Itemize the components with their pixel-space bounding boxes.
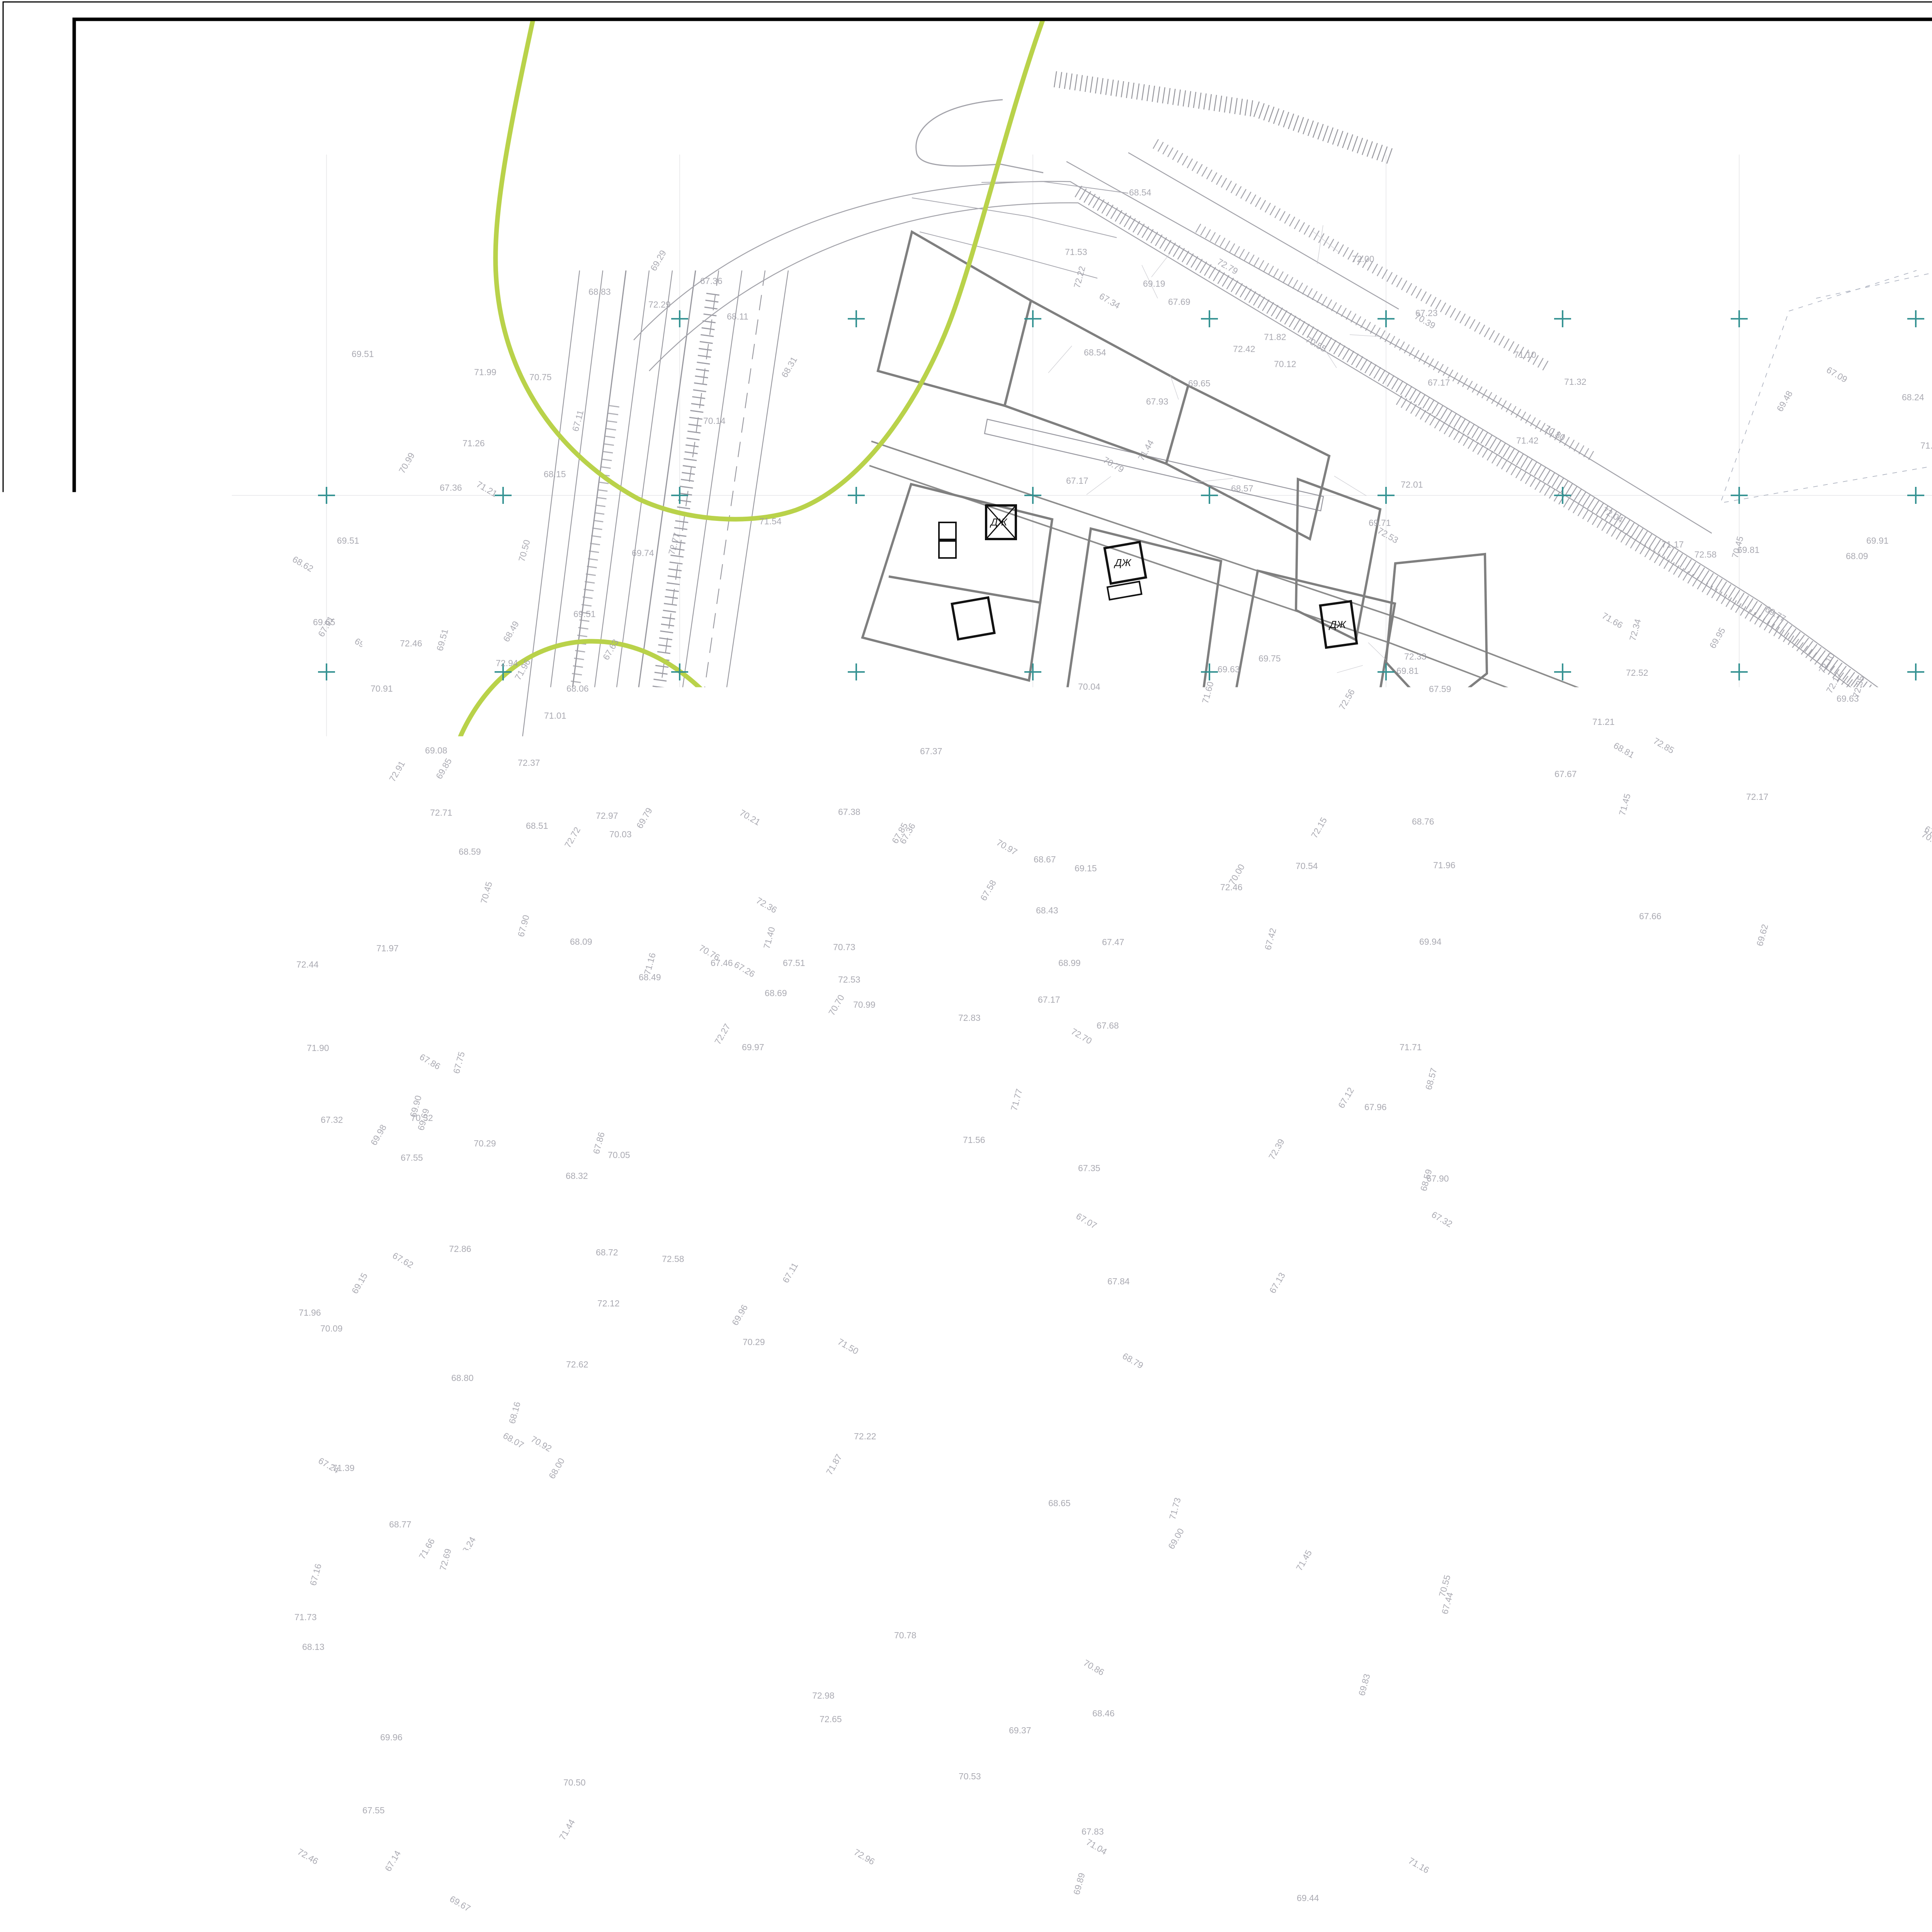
svg-text:72.00: 72.00	[1352, 254, 1374, 264]
svg-text:72.46: 72.46	[1220, 882, 1243, 892]
svg-text:71.99: 71.99	[474, 367, 497, 377]
svg-text:67.13: 67.13	[1649, 1224, 1671, 1234]
svg-text:71.32: 71.32	[1593, 1680, 1615, 1690]
svg-text:68.46: 68.46	[1092, 1708, 1115, 1718]
svg-text:71.73: 71.73	[294, 1612, 317, 1622]
svg-text:71.95: 71.95	[1405, 1836, 1428, 1846]
svg-text:72.97: 72.97	[596, 811, 618, 821]
svg-text:71.97: 71.97	[376, 943, 399, 953]
svg-text:70.14: 70.14	[703, 416, 726, 426]
svg-text:68.99: 68.99	[1058, 958, 1081, 968]
svg-text:68.54: 68.54	[1084, 347, 1106, 357]
svg-text:67.55: 67.55	[401, 1153, 423, 1163]
svg-text:70.85: 70.85	[1648, 1238, 1671, 1248]
svg-text:71.42: 71.42	[1516, 435, 1539, 446]
svg-text:69.57: 69.57	[1774, 983, 1796, 993]
svg-text:67.17: 67.17	[1428, 378, 1450, 388]
svg-text:68.32: 68.32	[566, 1171, 588, 1181]
svg-text:69.94: 69.94	[1419, 937, 1442, 947]
svg-text:71.34: 71.34	[1874, 1628, 1897, 1638]
svg-text:68.59: 68.59	[1899, 1498, 1922, 1508]
svg-text:71.54: 71.54	[838, 1734, 861, 1744]
svg-text:КН: КН	[1225, 1706, 1238, 1718]
svg-text:68.24: 68.24	[1902, 392, 1924, 402]
svg-text:70.06: 70.06	[872, 1522, 894, 1532]
svg-text:68.57: 68.57	[1231, 483, 1253, 493]
svg-text:69.84: 69.84	[691, 1069, 714, 1079]
svg-text:68.02: 68.02	[867, 1638, 890, 1648]
svg-text:69.65: 69.65	[1188, 378, 1211, 388]
svg-text:71.32: 71.32	[1564, 377, 1587, 387]
svg-text:71.96: 71.96	[1695, 1496, 1717, 1506]
svg-text:69.64: 69.64	[277, 1603, 299, 1613]
svg-text:69.51: 69.51	[352, 349, 374, 359]
svg-text:70.32: 70.32	[411, 1113, 433, 1123]
svg-text:72.17: 72.17	[1746, 792, 1769, 802]
svg-text:68.20: 68.20	[856, 1617, 878, 1627]
svg-text:71.81: 71.81	[561, 1786, 583, 1796]
svg-text:67.13: 67.13	[961, 1894, 983, 1904]
svg-text:69.74: 69.74	[632, 548, 654, 558]
svg-text:70.54: 70.54	[1296, 861, 1318, 871]
svg-text:71.35: 71.35	[892, 1180, 915, 1190]
svg-text:72.12: 72.12	[597, 1298, 620, 1308]
svg-text:71.82: 71.82	[1264, 332, 1286, 342]
svg-text:71.54: 71.54	[759, 516, 782, 526]
svg-text:70.78: 70.78	[894, 1630, 917, 1640]
svg-text:67.59: 67.59	[1429, 684, 1451, 694]
svg-text:67.35: 67.35	[1078, 1163, 1100, 1173]
svg-text:69.97: 69.97	[742, 1042, 764, 1052]
svg-text:70.04: 70.04	[1078, 682, 1100, 692]
svg-text:70.61: 70.61	[1674, 1769, 1697, 1779]
svg-text:72.94: 72.94	[496, 658, 518, 668]
svg-text:71.71: 71.71	[1400, 1042, 1422, 1052]
svg-text:69.89: 69.89	[481, 1549, 504, 1560]
svg-text:72.30: 72.30	[1176, 1765, 1199, 1775]
svg-text:72.33: 72.33	[1404, 651, 1427, 662]
svg-text:72.37: 72.37	[518, 758, 540, 768]
svg-text:67.93: 67.93	[1146, 396, 1168, 406]
svg-text:70.03: 70.03	[609, 829, 632, 839]
svg-text:72.22: 72.22	[854, 1431, 876, 1441]
svg-text:68.65: 68.65	[1048, 1498, 1071, 1508]
svg-text:71.53: 71.53	[1065, 247, 1087, 257]
svg-text:67.83: 67.83	[1082, 1827, 1104, 1837]
svg-text:70.75: 70.75	[1522, 1838, 1544, 1848]
svg-text:69.75: 69.75	[1259, 653, 1281, 663]
svg-text:70.29: 70.29	[474, 1138, 496, 1148]
svg-text:68.11: 68.11	[983, 1518, 1004, 1528]
svg-text:67.84: 67.84	[1107, 1276, 1130, 1286]
svg-text:69.09: 69.09	[1828, 1598, 1851, 1608]
svg-text:72.62: 72.62	[566, 1359, 588, 1369]
svg-text:68.80: 68.80	[451, 1373, 474, 1383]
svg-text:69.00: 69.00	[1665, 1370, 1687, 1380]
svg-text:69.31: 69.31	[1575, 972, 1597, 982]
svg-text:69.34: 69.34	[1014, 1184, 1036, 1194]
svg-text:67.97: 67.97	[924, 1357, 947, 1367]
svg-text:72.57: 72.57	[1450, 1265, 1472, 1275]
svg-text:67.49: 67.49	[1672, 1307, 1694, 1317]
svg-text:67.49: 67.49	[908, 1327, 930, 1337]
svg-text:71.90: 71.90	[307, 1043, 329, 1053]
svg-text:68.51: 68.51	[526, 821, 548, 831]
svg-text:70.88: 70.88	[1818, 1565, 1841, 1575]
svg-text:70.91: 70.91	[371, 684, 393, 694]
svg-text:68.28: 68.28	[478, 1316, 500, 1326]
svg-text:67.47: 67.47	[1102, 937, 1124, 947]
svg-text:71.21: 71.21	[1592, 717, 1615, 727]
svg-text:71.68: 71.68	[1764, 1088, 1786, 1099]
svg-text:68.67: 68.67	[1034, 854, 1056, 864]
svg-text:68.11: 68.11	[727, 311, 748, 321]
svg-text:70.53: 70.53	[959, 1771, 981, 1781]
svg-text:72.65: 72.65	[820, 1714, 842, 1724]
svg-text:70.73: 70.73	[833, 942, 855, 952]
svg-text:69.71: 69.71	[1369, 518, 1391, 528]
svg-text:70.29: 70.29	[1715, 954, 1737, 964]
svg-text:71.56: 71.56	[963, 1135, 985, 1145]
svg-text:69.15: 69.15	[1075, 863, 1097, 873]
svg-text:69.51: 69.51	[573, 609, 596, 619]
svg-text:70.96: 70.96	[1697, 1669, 1720, 1679]
svg-text:70.82: 70.82	[1541, 1669, 1563, 1679]
svg-text:71.60: 71.60	[1872, 1331, 1895, 1341]
svg-text:72.46: 72.46	[400, 638, 422, 648]
svg-text:72.52: 72.52	[1626, 668, 1648, 678]
svg-text:67.04: 67.04	[1529, 966, 1551, 976]
svg-text:68.52: 68.52	[469, 1174, 492, 1184]
svg-text:67.22: 67.22	[1144, 1306, 1166, 1316]
svg-text:67.90: 67.90	[1427, 1173, 1449, 1184]
svg-text:72.29: 72.29	[648, 299, 671, 310]
svg-text:67.69: 67.69	[1168, 297, 1190, 307]
svg-text:70.05: 70.05	[608, 1150, 630, 1160]
svg-text:68.43: 68.43	[1036, 905, 1058, 915]
svg-text:68.59: 68.59	[459, 847, 481, 857]
svg-text:68.09: 68.09	[570, 937, 592, 947]
svg-text:68.77: 68.77	[389, 1519, 412, 1529]
svg-text:72.87: 72.87	[1597, 1930, 1619, 1932]
svg-text:69.63: 69.63	[1218, 664, 1240, 674]
svg-text:67.36: 67.36	[440, 483, 462, 493]
svg-text:70.37: 70.37	[509, 1497, 532, 1507]
svg-text:68.75: 68.75	[1855, 1522, 1878, 1532]
svg-text:71.41: 71.41	[1580, 1591, 1602, 1601]
svg-text:70.12: 70.12	[1274, 359, 1296, 369]
svg-text:72.24: 72.24	[317, 1503, 340, 1514]
svg-text:69.37: 69.37	[1009, 1725, 1031, 1735]
svg-text:70.66: 70.66	[883, 1842, 905, 1852]
svg-text:ДЖ: ДЖ	[990, 516, 1008, 528]
svg-text:67.32: 67.32	[321, 1115, 343, 1125]
svg-text:67.17: 67.17	[1038, 995, 1060, 1005]
svg-text:67.36: 67.36	[700, 276, 723, 286]
svg-text:67.97: 67.97	[1524, 1473, 1546, 1483]
svg-text:69.33: 69.33	[1812, 1629, 1835, 1639]
svg-text:70.14: 70.14	[427, 904, 450, 914]
svg-text:72.54: 72.54	[1707, 1893, 1730, 1903]
svg-text:69.44: 69.44	[1297, 1893, 1319, 1903]
svg-text:71.96: 71.96	[299, 1308, 321, 1318]
svg-text:68.72: 68.72	[596, 1247, 618, 1257]
svg-text:68.09: 68.09	[1846, 551, 1868, 561]
svg-text:69.94: 69.94	[1853, 1151, 1875, 1161]
svg-text:72.83: 72.83	[958, 1013, 981, 1023]
svg-text:68.54: 68.54	[1129, 187, 1151, 197]
svg-text:69.08: 69.08	[425, 745, 447, 755]
svg-text:68.15: 68.15	[544, 469, 566, 479]
svg-text:72.13: 72.13	[1777, 1547, 1799, 1557]
svg-text:72.86: 72.86	[1655, 1604, 1677, 1614]
svg-text:ДЖ: ДЖ	[922, 841, 940, 852]
svg-text:72.42: 72.42	[1233, 344, 1255, 354]
svg-text:69.91: 69.91	[1866, 536, 1889, 546]
svg-text:68.69: 68.69	[765, 988, 787, 998]
svg-text:71.10: 71.10	[1514, 350, 1536, 360]
svg-text:68.83: 68.83	[588, 287, 611, 297]
svg-text:71.01: 71.01	[544, 711, 566, 721]
svg-text:70.99: 70.99	[853, 1000, 876, 1010]
svg-text:71.52: 71.52	[863, 1092, 886, 1102]
svg-text:69.51: 69.51	[337, 536, 359, 546]
svg-text:72.98: 72.98	[812, 1690, 835, 1701]
svg-text:ДЖ: ДЖ	[758, 1490, 776, 1502]
svg-text:72.53: 72.53	[838, 975, 861, 985]
svg-text:72.71: 72.71	[430, 808, 452, 818]
svg-text:71.56: 71.56	[1920, 440, 1932, 451]
svg-text:ДЖ: ДЖ	[1114, 557, 1132, 568]
svg-text:ДЖ: ДЖ	[1395, 1015, 1413, 1026]
svg-text:71.97: 71.97	[845, 1801, 867, 1811]
svg-text:67.67: 67.67	[1554, 769, 1577, 779]
svg-text:67.46: 67.46	[711, 958, 733, 968]
svg-text:67.87: 67.87	[1702, 1752, 1725, 1762]
svg-text:ДЖ: ДЖ	[879, 1905, 898, 1917]
svg-text:69.43: 69.43	[1235, 1432, 1257, 1442]
svg-text:68.13: 68.13	[302, 1642, 325, 1652]
svg-text:ДЖ: ДЖ	[1370, 1084, 1388, 1096]
svg-text:69.65: 69.65	[313, 617, 335, 627]
svg-text:67.49: 67.49	[1393, 1883, 1415, 1893]
svg-text:67.01: 67.01	[1866, 931, 1888, 941]
svg-text:ДЖ: ДЖ	[1328, 619, 1347, 630]
svg-text:71.83: 71.83	[1809, 1344, 1831, 1354]
svg-text:70.09: 70.09	[320, 1323, 343, 1333]
svg-text:71.39: 71.39	[332, 1463, 355, 1473]
svg-text:70.29: 70.29	[743, 1337, 765, 1347]
svg-text:67.55: 67.55	[362, 1805, 385, 1815]
svg-text:67.66: 67.66	[1639, 911, 1662, 921]
svg-text:68.76: 68.76	[1412, 816, 1434, 827]
svg-text:72.44: 72.44	[296, 959, 319, 969]
svg-text:70.75: 70.75	[529, 372, 552, 382]
svg-text:67.11: 67.11	[1392, 1473, 1413, 1483]
svg-text:67.38: 67.38	[838, 807, 861, 817]
svg-text:69.86: 69.86	[1849, 1596, 1871, 1606]
svg-text:72.01: 72.01	[1401, 480, 1423, 490]
svg-text:71.71: 71.71	[1399, 1893, 1422, 1903]
svg-text:69.19: 69.19	[1143, 279, 1165, 289]
svg-text:72.69: 72.69	[1739, 1196, 1761, 1206]
svg-text:69.81: 69.81	[1240, 1668, 1262, 1678]
svg-text:71.96: 71.96	[1433, 860, 1456, 870]
svg-text:70.82: 70.82	[1018, 1814, 1041, 1824]
svg-text:67.37: 67.37	[920, 746, 942, 756]
svg-text:69.09: 69.09	[1842, 1688, 1864, 1698]
svg-text:67.26: 67.26	[902, 1877, 925, 1887]
svg-text:ДЖ: ДЖ	[954, 1930, 972, 1932]
svg-text:71.17: 71.17	[1662, 539, 1684, 549]
svg-text:68.72: 68.72	[1874, 1657, 1896, 1667]
svg-text:68.90: 68.90	[1859, 1030, 1881, 1040]
svg-text:67.10: 67.10	[1598, 1332, 1621, 1342]
svg-text:68.06: 68.06	[566, 684, 589, 694]
svg-text:67.68: 67.68	[1097, 1020, 1119, 1031]
svg-text:71.26: 71.26	[463, 438, 485, 448]
svg-text:69.81: 69.81	[1396, 666, 1419, 676]
svg-text:72.72: 72.72	[1050, 1334, 1072, 1344]
svg-text:69.24: 69.24	[1248, 1411, 1270, 1421]
svg-text:67.17: 67.17	[1066, 476, 1088, 486]
svg-text:67.55: 67.55	[1173, 1869, 1195, 1879]
svg-text:72.58: 72.58	[1694, 549, 1717, 560]
svg-text:ДЖ: ДЖ	[915, 949, 934, 961]
svg-text:68.21: 68.21	[1650, 1396, 1672, 1406]
svg-text:72.58: 72.58	[662, 1254, 684, 1264]
svg-text:72.86: 72.86	[449, 1244, 471, 1254]
svg-text:69.96: 69.96	[380, 1732, 403, 1742]
svg-text:70.72: 70.72	[881, 1793, 903, 1803]
svg-text:67.51: 67.51	[783, 958, 805, 968]
svg-text:67.96: 67.96	[1364, 1102, 1387, 1112]
svg-text:68.67: 68.67	[1077, 1864, 1099, 1874]
